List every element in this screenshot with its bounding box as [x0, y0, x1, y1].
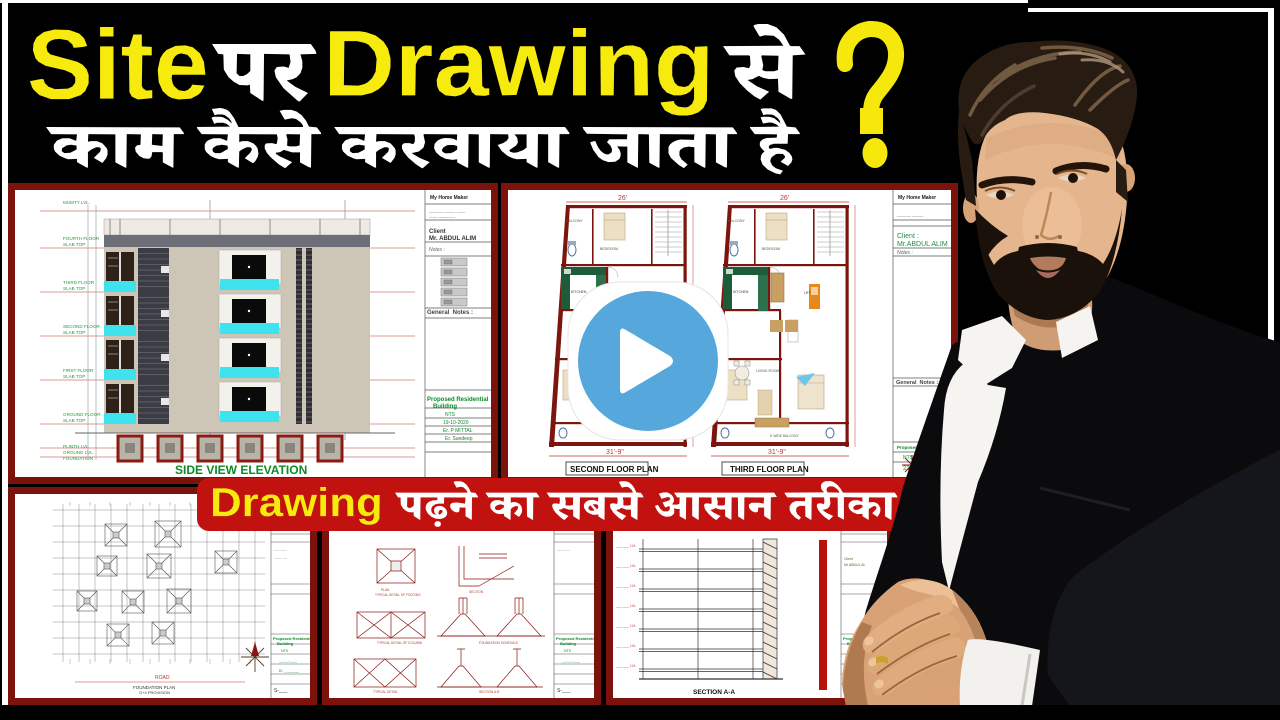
svg-text:General Notes :: General Notes :: [427, 310, 473, 316]
svg-text:PLINTH LVL.: PLINTH LVL.: [63, 444, 90, 449]
svg-text:LIVING ROOM: LIVING ROOM: [756, 369, 779, 373]
svg-text:KITCHEN: KITCHEN: [571, 290, 587, 294]
svg-text:Notes :: Notes :: [429, 247, 445, 253]
svg-text:NTS: NTS: [445, 412, 456, 418]
svg-text:BALCONY: BALCONY: [566, 219, 583, 223]
svg-text:THIRD FLOOR PLAN: THIRD FLOOR PLAN: [730, 465, 809, 474]
svg-text:FOUNDATION: FOUNDATION: [63, 456, 93, 461]
svg-text:Er. Sandeep: Er. Sandeep: [445, 436, 473, 442]
svg-text:Building: Building: [277, 641, 294, 646]
svg-text:BEDROOM: BEDROOM: [600, 247, 618, 251]
svg-text:26': 26': [780, 195, 789, 202]
svg-text:___ ____ LVL: ___ ____ LVL: [615, 604, 636, 608]
svg-text:SECTION: SECTION: [469, 590, 484, 594]
svg-text:___ ____ LVL: ___ ____ LVL: [615, 584, 636, 588]
svg-text:___ ____ LVL: ___ ____ LVL: [615, 624, 636, 628]
svg-text:TYPICAL DETAIL OF COLUMN: TYPICAL DETAIL OF COLUMN: [377, 641, 423, 645]
svg-text:31'-9": 31'-9": [768, 449, 786, 456]
svg-text:BEDROOM: BEDROOM: [762, 247, 780, 251]
svg-text:__-__-____: __-__-____: [561, 659, 580, 663]
svg-text:LIFT: LIFT: [804, 291, 811, 295]
svg-text:ROAD: ROAD: [155, 675, 170, 681]
svg-text:FIRST FLOOR: FIRST FLOOR: [63, 368, 94, 373]
svg-text:___ ______: ___ ______: [428, 213, 456, 219]
svg-text:Client: Client: [429, 229, 446, 235]
svg-text:NTS: NTS: [564, 649, 572, 653]
svg-text:FOUNDATION SCHEDULE: FOUNDATION SCHEDULE: [479, 641, 518, 645]
svg-text:My Home Maker: My Home Maker: [430, 195, 468, 201]
svg-text:SECOND FLOOR PLAN: SECOND FLOOR PLAN: [570, 465, 659, 474]
svg-text:___ ____ LVL: ___ ____ LVL: [615, 644, 636, 648]
svg-text:SIDE VIEW ELEVATION: SIDE VIEW ELEVATION: [175, 463, 307, 477]
svg-text:TYPICAL DETAIL OF FOOTING: TYPICAL DETAIL OF FOOTING: [375, 593, 421, 597]
svg-text:SECTION A-A: SECTION A-A: [693, 689, 735, 696]
svg-text:SLAB TOP: SLAB TOP: [63, 242, 85, 247]
svg-text:S-___: S-___: [557, 688, 571, 694]
svg-text:TYPICAL DETAIL: TYPICAL DETAIL: [373, 690, 398, 694]
svg-text:Er. _ ______: Er. _ ______: [279, 669, 299, 673]
svg-text:Proposed Residential: Proposed Residential: [427, 397, 489, 403]
svg-text:SECTION A-B: SECTION A-B: [479, 690, 499, 694]
svg-text:SECOND FLOOR: SECOND FLOOR: [63, 324, 100, 329]
svg-text:__ ____: __ ____: [556, 547, 570, 551]
svg-text:SLAB TOP: SLAB TOP: [63, 374, 85, 379]
svg-text:THIRD FLOOR: THIRD FLOOR: [63, 280, 95, 285]
svg-text:Building: Building: [433, 404, 457, 410]
svg-text:G+4 PROVISION: G+4 PROVISION: [139, 690, 170, 695]
svg-text:Er. P MITTAL: Er. P MITTAL: [443, 428, 473, 434]
svg-text:S-___: S-___: [274, 688, 288, 694]
svg-text:__-__-____: __-__-____: [278, 659, 297, 663]
svg-text:6' WIDE BALCONY: 6' WIDE BALCONY: [770, 434, 799, 438]
svg-text:FOURTH FLOOR: FOURTH FLOOR: [63, 236, 100, 241]
svg-text:KITCHEN: KITCHEN: [733, 290, 749, 294]
svg-text:BALCONY: BALCONY: [728, 219, 745, 223]
svg-text:GROUND LVL.: GROUND LVL.: [63, 450, 94, 455]
svg-text:SLAB TOP: SLAB TOP: [63, 286, 85, 291]
svg-text:GROUND FLOOR: GROUND FLOOR: [63, 412, 101, 417]
svg-text:___ ____ LVL: ___ ____ LVL: [615, 664, 636, 668]
svg-text:Building: Building: [560, 641, 577, 646]
svg-text:SLAB TOP: SLAB TOP: [63, 418, 85, 423]
svg-text:Mr. ABDUL ALIM: Mr. ABDUL ALIM: [429, 236, 476, 242]
svg-text:__ ____: __ ____: [273, 547, 287, 551]
svg-text:31'-9": 31'-9": [606, 449, 624, 456]
svg-text:___ ____ LVL: ___ ____ LVL: [615, 544, 636, 548]
svg-text:____ __: ____ __: [273, 555, 287, 559]
svg-text:26': 26': [618, 195, 627, 202]
svg-text:19-10-2020: 19-10-2020: [443, 420, 469, 426]
svg-text:SLAB TOP: SLAB TOP: [63, 330, 85, 335]
svg-text:MUMTY LVL.: MUMTY LVL.: [63, 200, 90, 205]
svg-text:___ ____ LVL: ___ ____ LVL: [615, 564, 636, 568]
svg-text:PLAN: PLAN: [381, 588, 390, 592]
svg-text:NTS: NTS: [281, 649, 289, 653]
